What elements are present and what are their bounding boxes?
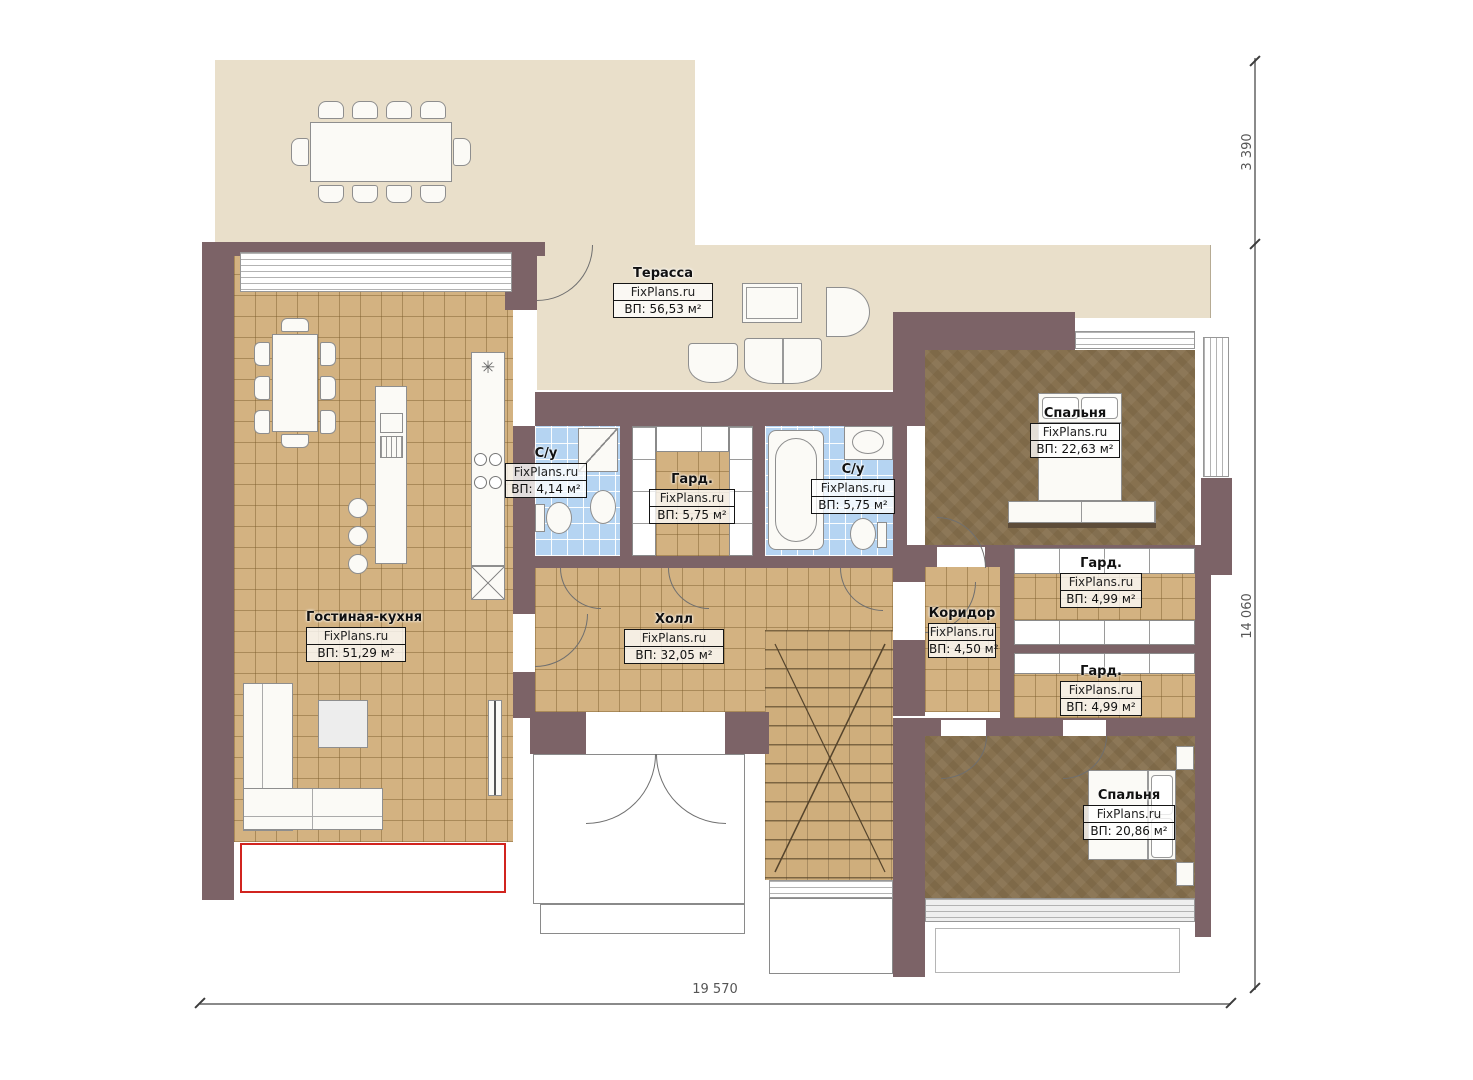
watermark: FixPlans.ru xyxy=(1084,806,1174,823)
chair xyxy=(320,410,336,434)
room-label-bedroom-top: Спальня FixPlans.ru ВП: 22,63 м² xyxy=(1030,406,1120,458)
room-area: ВП: 5,75 м² xyxy=(650,507,734,523)
room-label-living-kitchen: Гостиная-кухня FixPlans.ru ВП: 51,29 м² xyxy=(306,610,406,662)
room-label-wardrobe-right-top: Гард. FixPlans.ru ВП: 4,99 м² xyxy=(1060,556,1142,608)
cooker-hood-icon: ✳ xyxy=(477,358,499,380)
chair xyxy=(352,101,378,119)
room-area: ВП: 4,14 м² xyxy=(506,481,586,497)
window xyxy=(769,880,893,898)
room-name: Гард. xyxy=(1060,556,1142,571)
wardrobe-shelf xyxy=(656,426,729,452)
room-name: Гард. xyxy=(649,472,735,487)
chair xyxy=(386,101,412,119)
panoramic-window-zone xyxy=(240,843,506,893)
bar-stool xyxy=(348,498,368,518)
wall xyxy=(513,672,535,718)
chair xyxy=(318,185,344,203)
dimension-line xyxy=(200,1003,1231,1005)
watermark: FixPlans.ru xyxy=(614,284,712,301)
dimension-label: 14 060 xyxy=(1240,576,1256,656)
dimension-label: 19 570 xyxy=(665,982,765,998)
room-area: ВП: 4,99 м² xyxy=(1061,699,1141,715)
watermark: FixPlans.ru xyxy=(1061,574,1141,591)
room-info-box: FixPlans.ru ВП: 4,50 м² xyxy=(928,623,996,658)
wall xyxy=(893,640,925,716)
room-name: Терасса xyxy=(613,266,713,281)
room-info-box: FixPlans.ru ВП: 20,86 м² xyxy=(1083,805,1175,840)
terrace-armchair xyxy=(688,343,738,383)
island-sink xyxy=(380,413,403,433)
rear-step xyxy=(935,928,1180,973)
room-area: ВП: 22,63 м² xyxy=(1031,441,1119,457)
room-area: ВП: 4,99 м² xyxy=(1061,591,1141,607)
room-name: Гостиная-кухня xyxy=(306,610,406,625)
wall xyxy=(725,712,769,754)
room-name: Гард. xyxy=(1060,664,1142,679)
room-info-box: FixPlans.ru ВП: 32,05 м² xyxy=(624,629,724,664)
room-label-corridor: Коридор FixPlans.ru ВП: 4,50 м² xyxy=(928,606,996,658)
rug-strip xyxy=(1008,523,1156,528)
room-info-box: FixPlans.ru ВП: 4,99 м² xyxy=(1060,681,1142,716)
watermark: FixPlans.ru xyxy=(650,490,734,507)
bar-stool xyxy=(348,526,368,546)
wall xyxy=(535,556,907,568)
wall xyxy=(893,736,925,977)
terrace-table xyxy=(742,283,802,323)
toilet xyxy=(850,518,876,550)
chair xyxy=(254,376,270,400)
room-name: Спальня xyxy=(1083,788,1175,803)
staircase-direction-lines xyxy=(765,630,893,880)
door-opening xyxy=(941,720,986,736)
room-label-hall: Холл FixPlans.ru ВП: 32,05 м² xyxy=(624,612,724,664)
floor-plan: ✳ Терасса FixPlans.ru ВП: 56,53 м² xyxy=(0,0,1473,1080)
room-label-bathroom-small: С/у FixPlans.ru ВП: 4,14 м² xyxy=(505,446,587,498)
wall xyxy=(1014,645,1201,653)
chair xyxy=(281,318,309,332)
room-info-box: FixPlans.ru ВП: 56,53 м² xyxy=(613,283,713,318)
window xyxy=(1075,331,1195,349)
tv-unit xyxy=(488,700,502,796)
window xyxy=(925,898,1195,922)
watermark: FixPlans.ru xyxy=(625,630,723,647)
chair xyxy=(386,185,412,203)
chair xyxy=(420,185,446,203)
chair xyxy=(320,342,336,366)
wall xyxy=(753,426,765,556)
door-opening xyxy=(893,582,925,640)
chair xyxy=(281,434,309,448)
chair xyxy=(254,342,270,366)
door-opening xyxy=(1063,720,1106,736)
sofa xyxy=(243,788,383,830)
room-info-box: FixPlans.ru ВП: 4,14 м² xyxy=(505,463,587,498)
room-info-box: FixPlans.ru ВП: 4,99 м² xyxy=(1060,573,1142,608)
wall xyxy=(620,426,632,556)
room-area: ВП: 32,05 м² xyxy=(625,647,723,663)
room-area: ВП: 4,50 м² xyxy=(929,641,995,657)
room-name: Коридор xyxy=(928,606,996,621)
wall xyxy=(530,712,586,754)
entrance-step xyxy=(540,904,745,934)
island-drainer xyxy=(380,436,403,458)
wall xyxy=(513,556,535,614)
room-area: ВП: 56,53 м² xyxy=(614,301,712,317)
wall xyxy=(893,426,907,556)
room-info-box: FixPlans.ru ВП: 5,75 м² xyxy=(649,489,735,524)
watermark: FixPlans.ru xyxy=(506,464,586,481)
dimension-label: 3 390 xyxy=(1240,112,1256,192)
room-label-wardrobe-center: Гард. FixPlans.ru ВП: 5,75 м² xyxy=(649,472,735,524)
room-label-bathroom-main: С/у FixPlans.ru ВП: 5,75 м² xyxy=(811,462,895,514)
nightstand xyxy=(1176,862,1194,886)
wall xyxy=(893,312,1075,350)
chair xyxy=(320,376,336,400)
stove xyxy=(473,452,503,492)
coffee-table xyxy=(318,700,368,748)
room-label-wardrobe-right-bottom: Гард. FixPlans.ru ВП: 4,99 м² xyxy=(1060,664,1142,716)
chair xyxy=(352,185,378,203)
chair xyxy=(453,138,471,166)
terrace-floor xyxy=(895,245,1211,318)
room-area: ВП: 20,86 м² xyxy=(1084,823,1174,839)
chair xyxy=(291,138,309,166)
sink xyxy=(852,430,884,454)
room-name: С/у xyxy=(811,462,895,477)
chair xyxy=(420,101,446,119)
room-info-box: FixPlans.ru ВП: 51,29 м² xyxy=(306,627,406,662)
door-opening xyxy=(513,614,535,672)
window xyxy=(1203,337,1229,477)
bed-bench xyxy=(1008,501,1156,523)
watermark: FixPlans.ru xyxy=(929,624,995,641)
sink xyxy=(590,490,616,524)
wall xyxy=(1000,567,1014,718)
toilet-tank xyxy=(535,504,545,532)
watermark: FixPlans.ru xyxy=(1061,682,1141,699)
wall xyxy=(202,242,234,900)
dining-table xyxy=(310,122,452,182)
toilet-tank xyxy=(877,522,887,548)
closet-row xyxy=(1014,620,1195,645)
room-name: Холл xyxy=(624,612,724,627)
wall xyxy=(893,718,1201,736)
watermark: FixPlans.ru xyxy=(812,480,894,497)
room-name: Спальня xyxy=(1030,406,1120,421)
room-label-terrace: Терасса FixPlans.ru ВП: 56,53 м² xyxy=(613,266,713,318)
wall xyxy=(1201,478,1232,575)
dishwasher xyxy=(471,566,505,600)
room-name: С/у xyxy=(505,446,587,461)
watermark: FixPlans.ru xyxy=(1031,424,1119,441)
room-label-bedroom-bottom: Спальня FixPlans.ru ВП: 20,86 м² xyxy=(1083,788,1175,840)
watermark: FixPlans.ru xyxy=(307,628,405,645)
dining-table xyxy=(272,334,318,432)
room-info-box: FixPlans.ru ВП: 5,75 м² xyxy=(811,479,895,514)
room-area: ВП: 5,75 м² xyxy=(812,497,894,513)
wall xyxy=(1195,565,1211,937)
wall xyxy=(535,392,907,426)
chair xyxy=(318,101,344,119)
chair xyxy=(254,410,270,434)
window xyxy=(240,252,512,292)
room-info-box: FixPlans.ru ВП: 22,63 м² xyxy=(1030,423,1120,458)
nightstand xyxy=(1176,746,1194,770)
bar-stool xyxy=(348,554,368,574)
room-area: ВП: 51,29 м² xyxy=(307,645,405,661)
terrace-loveseat xyxy=(744,338,822,384)
side-porch xyxy=(769,898,893,974)
toilet xyxy=(546,502,572,534)
